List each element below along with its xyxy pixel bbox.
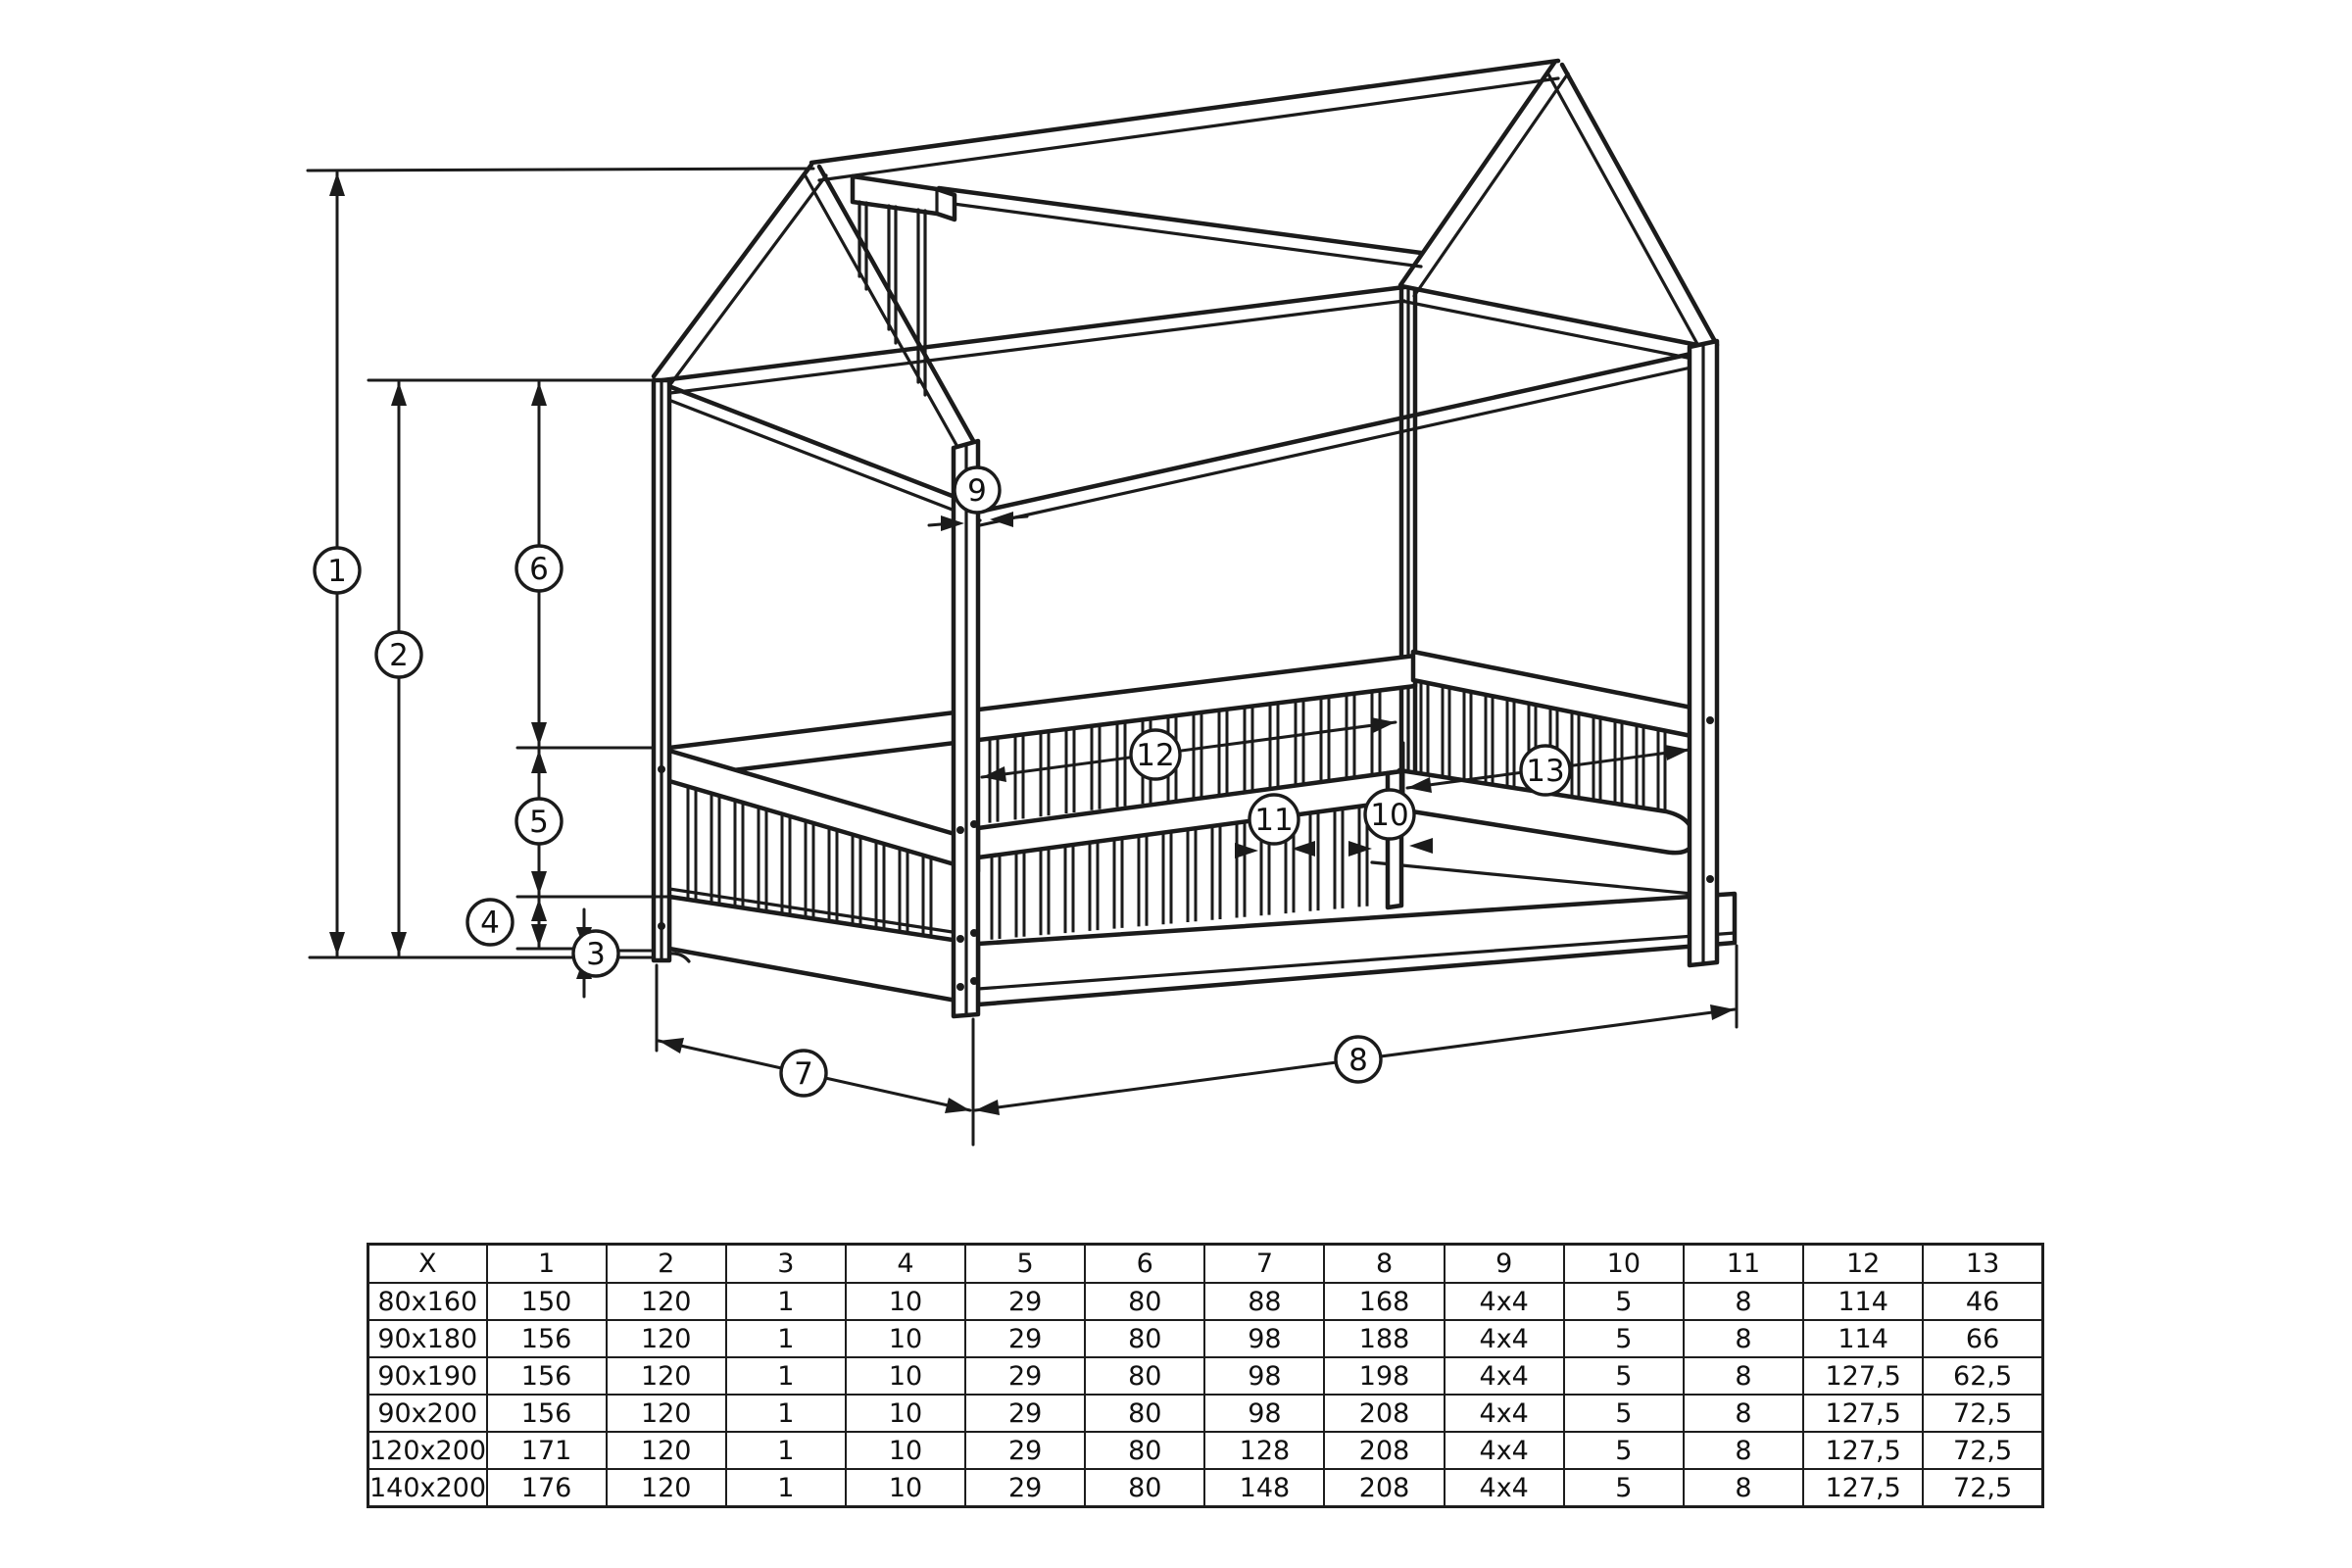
size-cell: 90x190: [368, 1357, 487, 1395]
value-cell: 1: [726, 1320, 846, 1357]
value-cell: 4x4: [1445, 1469, 1564, 1507]
value-cell: 10: [846, 1283, 965, 1320]
value-cell: 176: [487, 1469, 607, 1507]
svg-text:9: 9: [967, 473, 987, 509]
dimensions-table: X1234567891011121380x1601501201102980881…: [367, 1243, 2044, 1508]
value-cell: 10: [846, 1469, 965, 1507]
svg-text:6: 6: [529, 552, 549, 587]
value-cell: 120: [607, 1320, 726, 1357]
value-cell: 208: [1324, 1432, 1444, 1469]
column-header: 3: [726, 1245, 846, 1284]
column-header: 2: [607, 1245, 726, 1284]
svg-text:7: 7: [794, 1056, 813, 1092]
column-header: 4: [846, 1245, 965, 1284]
table-row: 120x20017112011029801282084x458127,572,5: [368, 1432, 2043, 1469]
value-cell: 88: [1204, 1283, 1324, 1320]
value-cell: 80: [1085, 1283, 1204, 1320]
value-cell: 10: [846, 1320, 965, 1357]
svg-text:1: 1: [327, 554, 347, 589]
callout-5: 5: [516, 799, 562, 844]
value-cell: 8: [1684, 1283, 1803, 1320]
size-cell: 120x200: [368, 1432, 487, 1469]
column-header: 8: [1324, 1245, 1444, 1284]
value-cell: 4x4: [1445, 1395, 1564, 1432]
value-cell: 8: [1684, 1320, 1803, 1357]
value-cell: 120: [607, 1395, 726, 1432]
column-header: 10: [1564, 1245, 1684, 1284]
value-cell: 156: [487, 1320, 607, 1357]
column-header: X: [368, 1245, 487, 1284]
size-cell: 80x160: [368, 1283, 487, 1320]
value-cell: 127,5: [1803, 1432, 1923, 1469]
page: 1 2 3 4 5 6 7 8 9: [0, 0, 2352, 1568]
column-header: 11: [1684, 1245, 1803, 1284]
value-cell: 10: [846, 1432, 965, 1469]
value-cell: 150: [487, 1283, 607, 1320]
value-cell: 4x4: [1445, 1357, 1564, 1395]
value-cell: 72,5: [1923, 1395, 2042, 1432]
svg-text:10: 10: [1370, 798, 1408, 833]
value-cell: 120: [607, 1432, 726, 1469]
column-header: 1: [487, 1245, 607, 1284]
callout-1: 1: [315, 548, 360, 593]
value-cell: 5: [1564, 1283, 1684, 1320]
column-header: 9: [1445, 1245, 1564, 1284]
value-cell: 5: [1564, 1469, 1684, 1507]
value-cell: 1: [726, 1357, 846, 1395]
value-cell: 8: [1684, 1357, 1803, 1395]
callout-9: 9: [955, 467, 1000, 513]
size-cell: 140x200: [368, 1469, 487, 1507]
callout-7: 7: [781, 1051, 826, 1096]
value-cell: 80: [1085, 1469, 1204, 1507]
value-cell: 114: [1803, 1320, 1923, 1357]
value-cell: 120: [607, 1357, 726, 1395]
svg-text:4: 4: [480, 906, 500, 941]
value-cell: 8: [1684, 1395, 1803, 1432]
value-cell: 188: [1324, 1320, 1444, 1357]
value-cell: 62,5: [1923, 1357, 2042, 1395]
column-header: 7: [1204, 1245, 1324, 1284]
value-cell: 80: [1085, 1320, 1204, 1357]
value-cell: 4x4: [1445, 1320, 1564, 1357]
value-cell: 8: [1684, 1469, 1803, 1507]
value-cell: 80: [1085, 1357, 1204, 1395]
ref-roof-top: [308, 169, 813, 171]
value-cell: 98: [1204, 1395, 1324, 1432]
roof-frame: [654, 61, 1717, 525]
svg-text:3: 3: [586, 937, 606, 972]
svg-text:11: 11: [1254, 803, 1293, 838]
svg-text:8: 8: [1348, 1043, 1368, 1078]
table-row: 90x1801561201102980981884x45811466: [368, 1320, 2043, 1357]
column-header: 5: [965, 1245, 1085, 1284]
svg-text:5: 5: [529, 805, 549, 840]
value-cell: 4x4: [1445, 1283, 1564, 1320]
value-cell: 120: [607, 1283, 726, 1320]
table-row: 90x2001561201102980982084x458127,572,5: [368, 1395, 2043, 1432]
value-cell: 127,5: [1803, 1469, 1923, 1507]
callout-13: 13: [1521, 746, 1570, 795]
value-cell: 208: [1324, 1395, 1444, 1432]
value-cell: 29: [965, 1357, 1085, 1395]
head-rear-post: [1401, 287, 1415, 774]
foot-front-post: [954, 441, 978, 1016]
callout-4: 4: [467, 900, 513, 945]
value-cell: 1: [726, 1395, 846, 1432]
column-header: 6: [1085, 1245, 1204, 1284]
svg-text:13: 13: [1526, 754, 1564, 789]
column-header: 13: [1923, 1245, 2042, 1284]
value-cell: 148: [1204, 1469, 1324, 1507]
value-cell: 29: [965, 1320, 1085, 1357]
house-bed-frame: [654, 61, 1735, 1016]
svg-text:12: 12: [1136, 738, 1174, 773]
value-cell: 1: [726, 1432, 846, 1469]
value-cell: 66: [1923, 1320, 2042, 1357]
callout-3: 3: [573, 931, 618, 976]
value-cell: 1: [726, 1283, 846, 1320]
value-cell: 127,5: [1803, 1395, 1923, 1432]
callout-8: 8: [1336, 1037, 1381, 1082]
table-row: 140x20017612011029801482084x458127,572,5: [368, 1469, 2043, 1507]
callout-6: 6: [516, 546, 562, 591]
value-cell: 171: [487, 1432, 607, 1469]
size-cell: 90x180: [368, 1320, 487, 1357]
value-cell: 198: [1324, 1357, 1444, 1395]
svg-text:2: 2: [389, 638, 409, 673]
dim-4: [531, 899, 547, 947]
value-cell: 156: [487, 1395, 607, 1432]
value-cell: 80: [1085, 1395, 1204, 1432]
value-cell: 208: [1324, 1469, 1444, 1507]
value-cell: 4x4: [1445, 1432, 1564, 1469]
value-cell: 120: [607, 1469, 726, 1507]
value-cell: 46: [1923, 1283, 2042, 1320]
table-row: 80x1601501201102980881684x45811446: [368, 1283, 2043, 1320]
value-cell: 29: [965, 1283, 1085, 1320]
value-cell: 98: [1204, 1320, 1324, 1357]
callout-2: 2: [376, 632, 421, 677]
value-cell: 98: [1204, 1357, 1324, 1395]
column-header: 12: [1803, 1245, 1923, 1284]
value-cell: 10: [846, 1395, 965, 1432]
value-cell: 72,5: [1923, 1469, 2042, 1507]
head-front-post: [1690, 341, 1717, 965]
value-cell: 29: [965, 1432, 1085, 1469]
callout-11: 11: [1249, 795, 1298, 844]
size-cell: 90x200: [368, 1395, 487, 1432]
callout-10: 10: [1365, 790, 1414, 839]
value-cell: 127,5: [1803, 1357, 1923, 1395]
value-cell: 29: [965, 1469, 1085, 1507]
value-cell: 114: [1803, 1283, 1923, 1320]
value-cell: 156: [487, 1357, 607, 1395]
value-cell: 5: [1564, 1357, 1684, 1395]
value-cell: 29: [965, 1395, 1085, 1432]
value-cell: 168: [1324, 1283, 1444, 1320]
value-cell: 72,5: [1923, 1432, 2042, 1469]
value-cell: 10: [846, 1357, 965, 1395]
value-cell: 5: [1564, 1320, 1684, 1357]
foot-rear-post: [654, 380, 689, 961]
table-header-row: X12345678910111213: [368, 1245, 2043, 1284]
table-row: 90x1901561201102980981984x458127,562,5: [368, 1357, 2043, 1395]
value-cell: 5: [1564, 1432, 1684, 1469]
callout-12: 12: [1131, 730, 1180, 779]
value-cell: 1: [726, 1469, 846, 1507]
value-cell: 8: [1684, 1432, 1803, 1469]
value-cell: 80: [1085, 1432, 1204, 1469]
value-cell: 128: [1204, 1432, 1324, 1469]
value-cell: 5: [1564, 1395, 1684, 1432]
